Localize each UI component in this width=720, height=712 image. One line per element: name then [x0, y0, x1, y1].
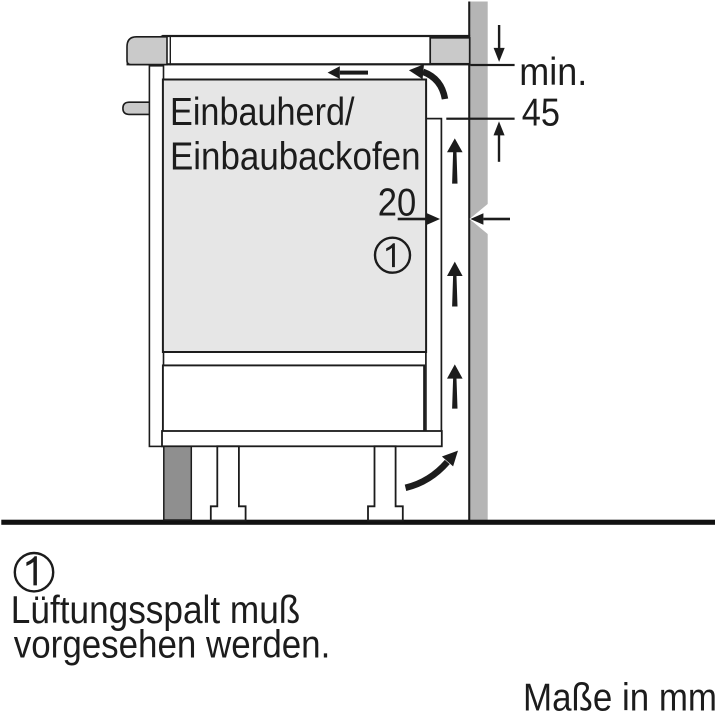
svg-text:Maße in mm: Maße in mm [523, 677, 717, 712]
svg-text:Einbauherd/: Einbauherd/ [170, 91, 355, 134]
svg-text:45: 45 [522, 92, 560, 135]
svg-text:Einbaubackofen: Einbaubackofen [170, 136, 421, 179]
svg-text:vorgesehen werden.: vorgesehen werden. [14, 624, 331, 667]
svg-text:min.: min. [519, 51, 587, 94]
